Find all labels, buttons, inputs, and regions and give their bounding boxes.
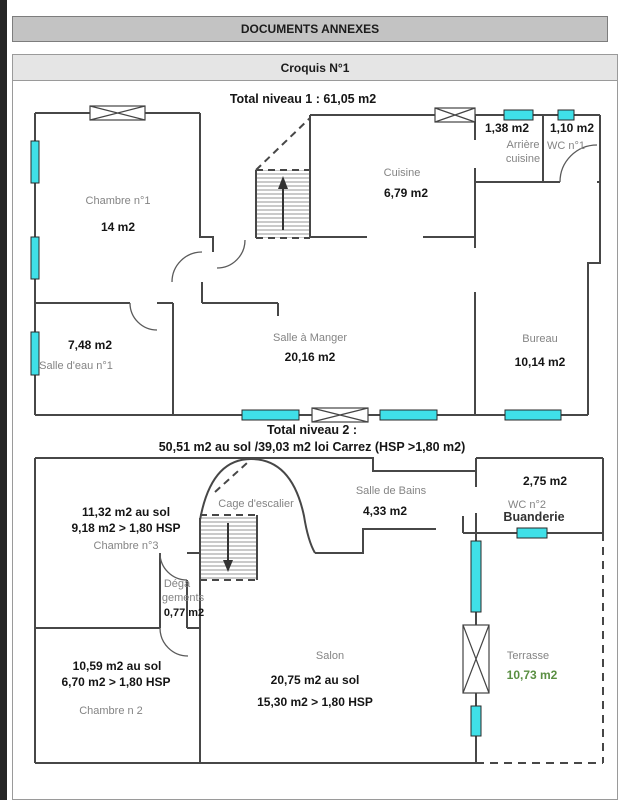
level2-title-line2: 50,51 m2 au sol /39,03 m2 loi Carrez (HS… — [159, 440, 466, 454]
room-label-wc1: WC n°1 — [547, 140, 585, 152]
room-area-bureau: 10,14 m2 — [515, 355, 566, 369]
room-area-arriere-cuisine: 1,38 m2 — [485, 121, 529, 135]
room-area-sol-chambre3: 11,32 m2 au sol — [82, 505, 170, 519]
window — [471, 541, 481, 612]
window — [471, 706, 481, 736]
room-area-wc1: 1,10 m2 — [550, 121, 594, 135]
document-page: DOCUMENTS ANNEXES Croquis N°1 — [0, 0, 621, 800]
room-area-hsp-salon: 15,30 m2 > 1,80 HSP — [257, 695, 373, 709]
window — [242, 410, 299, 420]
room-label-chambre3: Chambre n°3 — [94, 540, 159, 552]
room-area-hsp-chambre2: 6,70 m2 > 1,80 HSP — [61, 675, 170, 689]
room-area-salle-bains: 4,33 m2 — [363, 504, 407, 518]
window — [505, 410, 561, 420]
room-area-wc2: 2,75 m2 — [523, 474, 567, 488]
crossed-window — [435, 108, 475, 122]
room-label-cage-escalier: Cage d'escalier — [218, 498, 293, 510]
crossed-window — [90, 106, 145, 120]
room-area-chambre1: 14 m2 — [101, 220, 135, 234]
room-label-degagements-line1: Déga — [164, 578, 190, 590]
room-area-degagements: 0,77 m2 — [164, 607, 204, 619]
room-area-sol-salon: 20,75 m2 au sol — [271, 673, 360, 687]
level2-title-line1: Total niveau 2 : — [267, 423, 357, 437]
level2-door-arcs — [160, 553, 188, 656]
room-label-terrasse: Terrasse — [507, 650, 549, 662]
level1-title: Total niveau 1 : 61,05 m2 — [230, 92, 376, 106]
window — [517, 528, 547, 538]
level2-window-symbols — [463, 625, 489, 693]
crossed-window — [463, 625, 489, 693]
level1-window-symbols — [90, 106, 475, 422]
room-label-cuisine: Cuisine — [384, 167, 421, 179]
window — [31, 332, 39, 375]
room-area-terrasse: 10,73 m2 — [507, 668, 558, 682]
room-area-sol-chambre2: 10,59 m2 au sol — [73, 659, 162, 673]
window — [31, 141, 39, 183]
window — [504, 110, 533, 120]
window — [558, 110, 574, 120]
room-label-chambre2: Chambre n 2 — [79, 705, 143, 717]
room-label-buanderie: Buanderie — [503, 510, 564, 524]
room-label-chambre1: Chambre n°1 — [86, 195, 151, 207]
room-label-salle-a-manger: Salle à Manger — [273, 332, 347, 344]
crossed-window — [312, 408, 368, 422]
room-label-salon: Salon — [316, 650, 344, 662]
window — [31, 237, 39, 279]
room-area-cuisine: 6,79 m2 — [384, 186, 428, 200]
room-label-salle-eau: Salle d'eau n°1 — [39, 360, 113, 372]
room-label-degagements-line2: gements — [162, 592, 204, 604]
room-area-salle-eau: 7,48 m2 — [68, 338, 112, 352]
room-area-salle-a-manger: 20,16 m2 — [285, 350, 336, 364]
room-area-hsp-chambre3: 9,18 m2 > 1,80 HSP — [71, 521, 180, 535]
level2-terrace-dashed-boundary — [476, 533, 603, 763]
level1-stairs — [256, 118, 310, 238]
room-label-salle-bains: Salle de Bains — [356, 485, 426, 497]
level2-stairs — [200, 463, 257, 580]
window — [380, 410, 437, 420]
room-label-arriere-cuisine: Arrière cuisine — [492, 139, 554, 167]
room-label-bureau: Bureau — [522, 333, 557, 345]
